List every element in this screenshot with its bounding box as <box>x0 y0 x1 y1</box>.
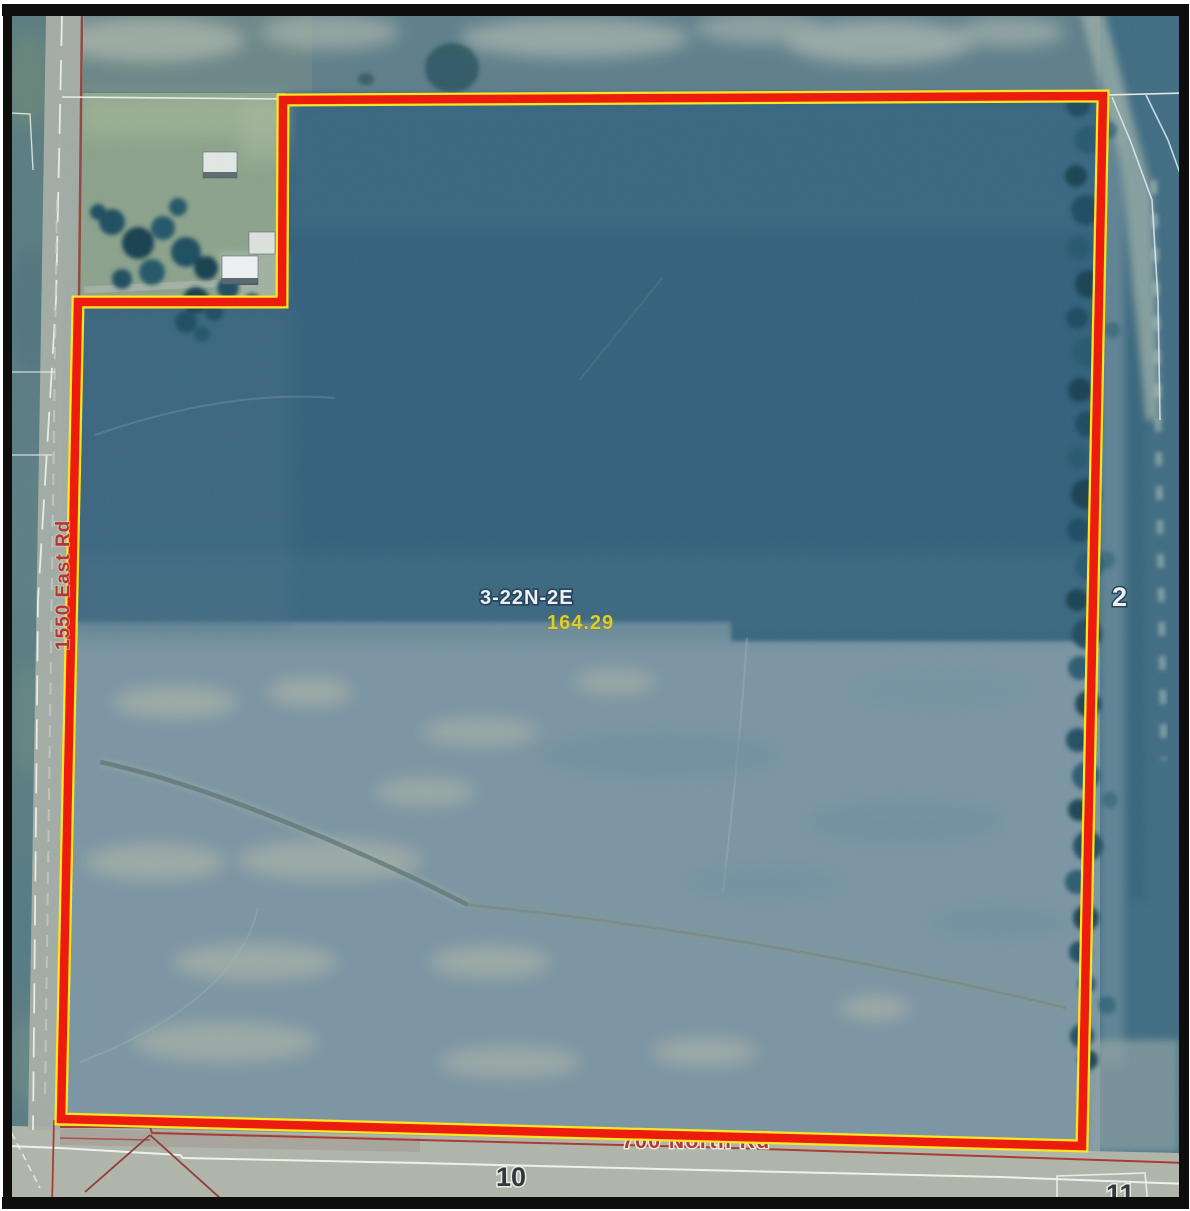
map-canvas: 700 North Rd 1550 East Rd 3-22N-2E 164.2… <box>0 0 1190 1211</box>
aerial-parcel-map[interactable]: 700 North Rd 1550 East Rd 3-22N-2E 164.2… <box>0 0 1190 1211</box>
grain-overlay <box>12 16 1179 1198</box>
